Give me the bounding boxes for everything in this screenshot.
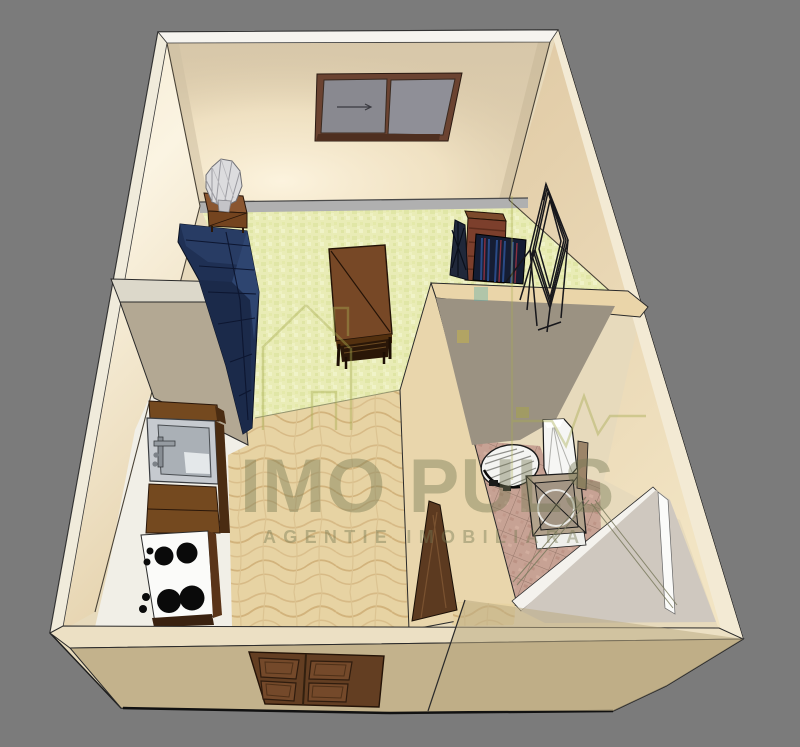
svg-text:AGENTIE IMOBILIARA: AGENTIE IMOBILIARA — [263, 527, 586, 547]
svg-text:IMO PULS: IMO PULS — [240, 444, 615, 529]
